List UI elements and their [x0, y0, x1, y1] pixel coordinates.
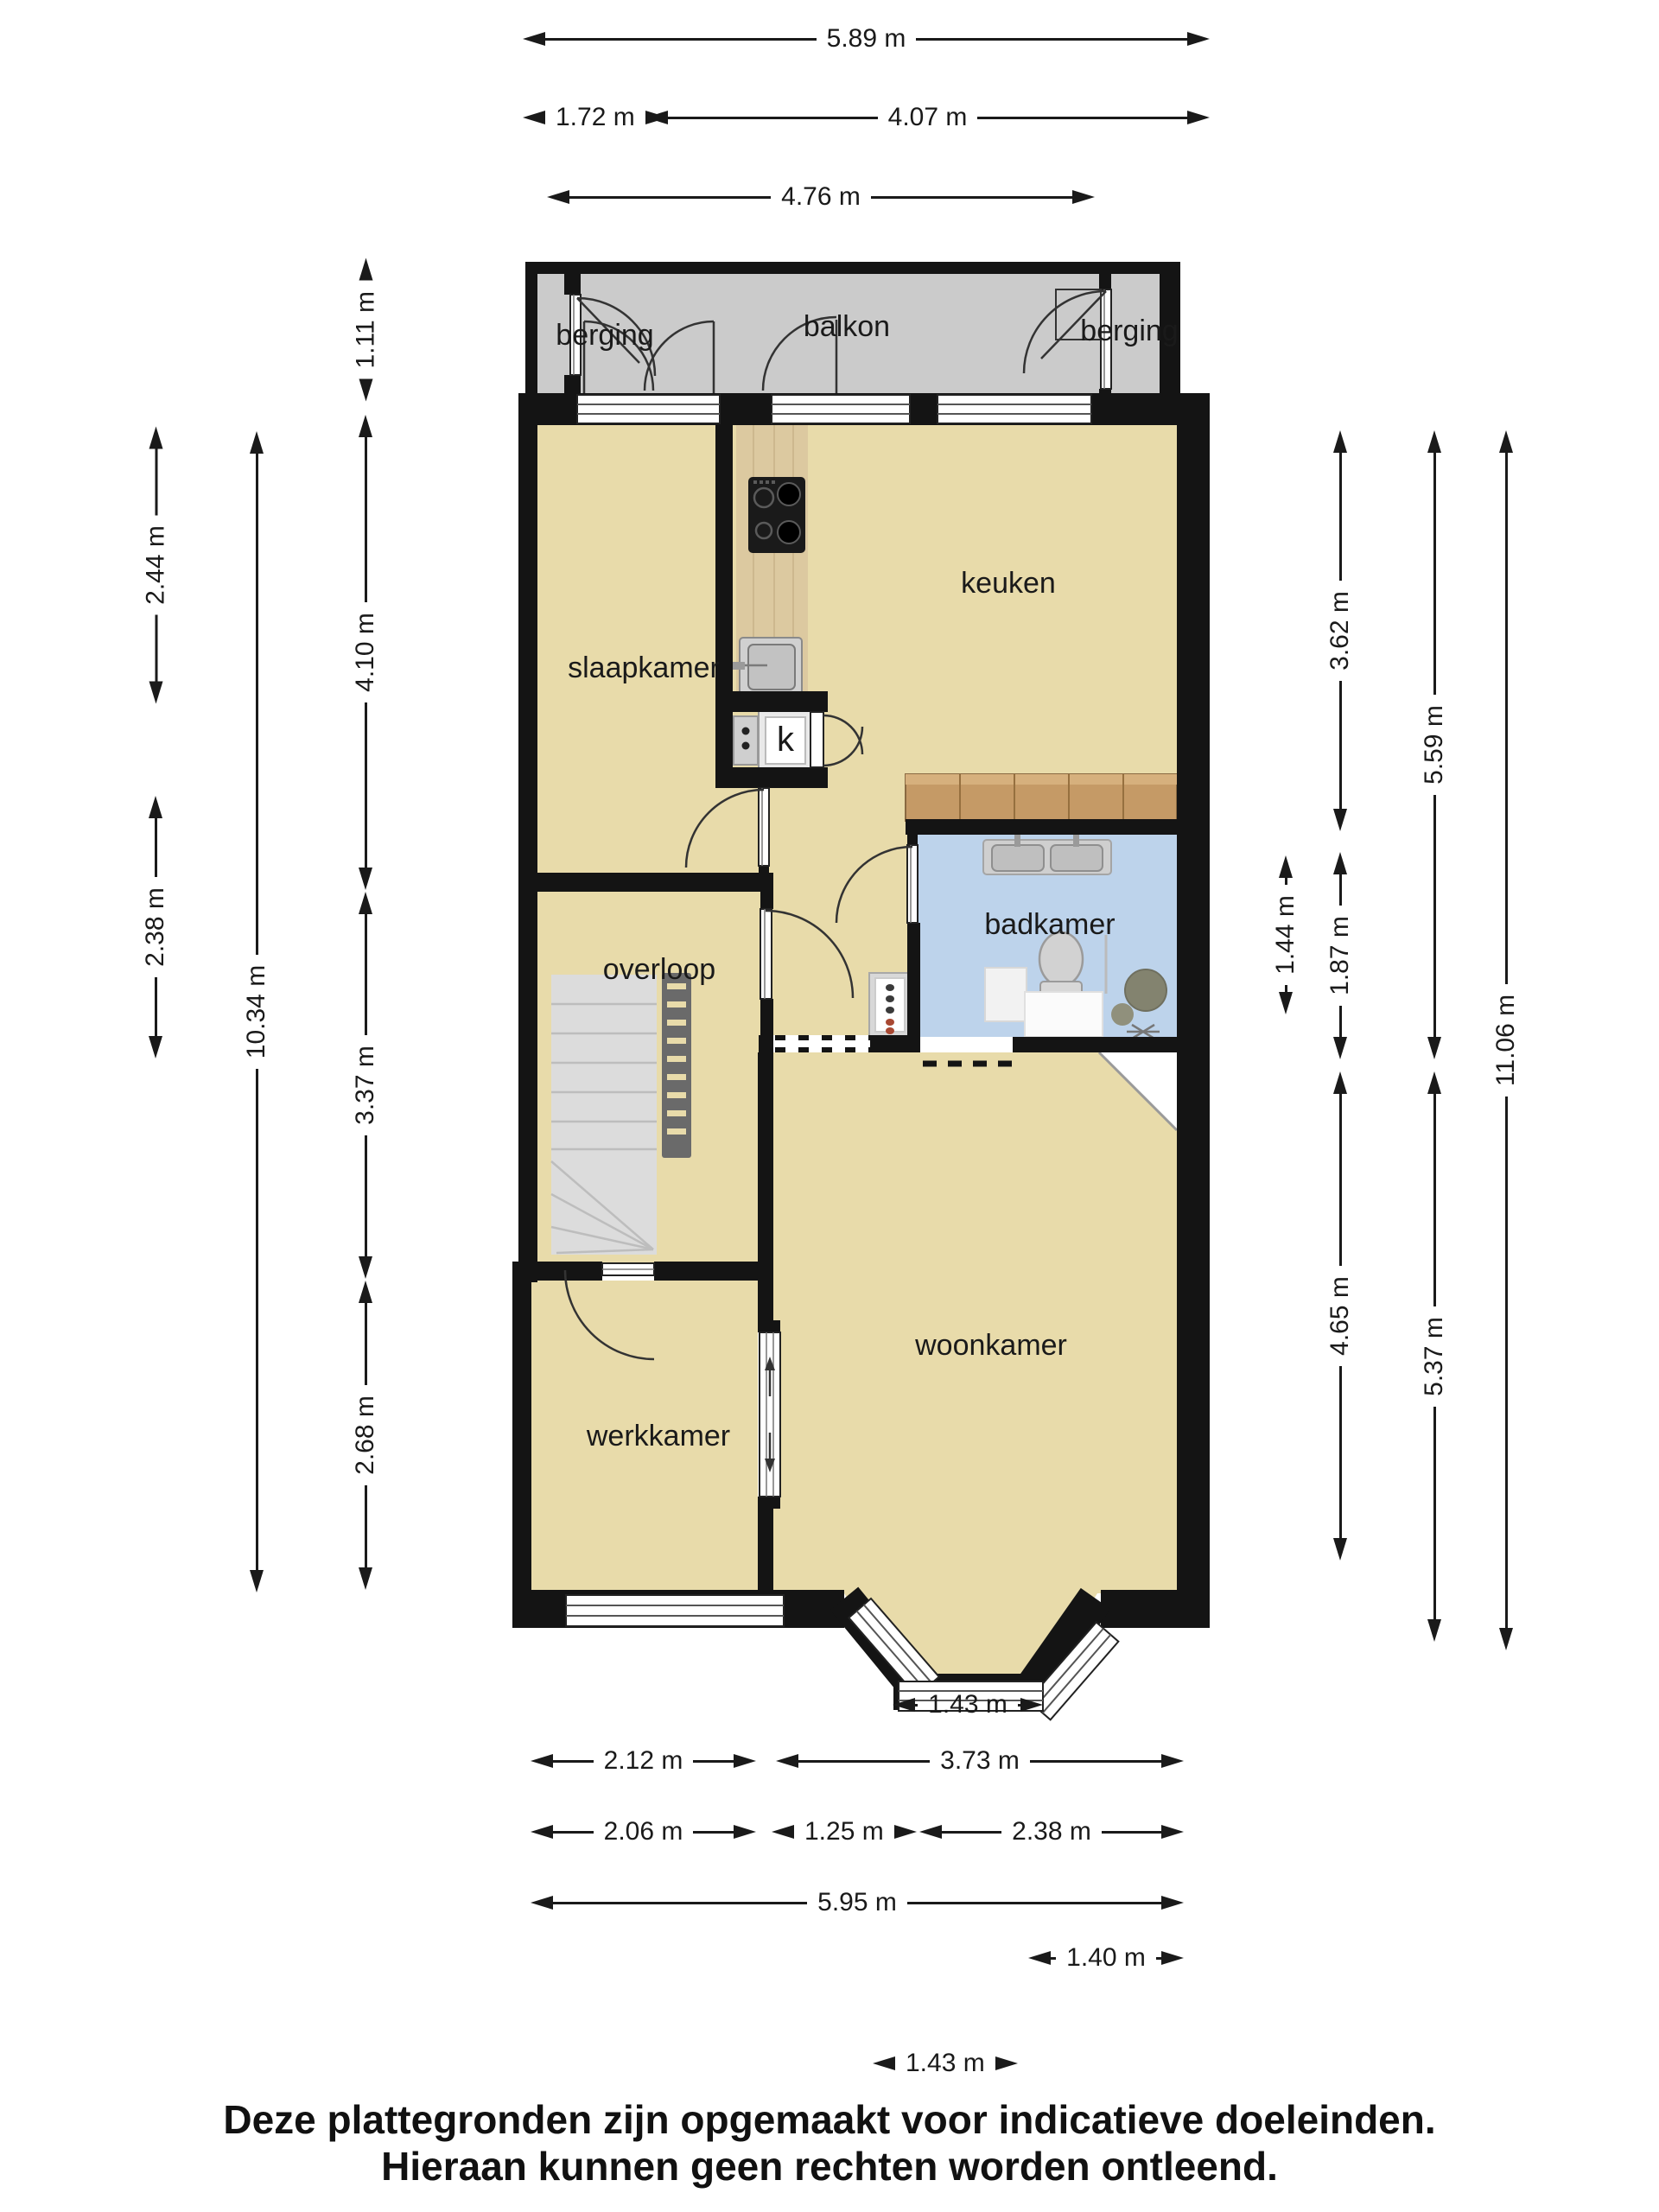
- meter-cupboard-icon: [869, 973, 911, 1037]
- room-label-badkamer: badkamer: [984, 910, 1115, 939]
- dim-bottom-143: 1.43 m: [873, 2048, 1007, 2079]
- kitchen-balcony-door: [772, 395, 910, 423]
- balcony-french-door: [577, 395, 720, 423]
- floorplan-page: berging balkon berging slaapkamer keuken…: [0, 0, 1659, 2212]
- room-label-woonkamer: woonkamer: [915, 1331, 1067, 1360]
- dim-top-balcony: 4.76 m: [547, 181, 1095, 213]
- bathroom-vanity-icon: [983, 833, 1111, 874]
- dim-left-balcony-depth: 1.11 m: [351, 275, 382, 402]
- dim-top-left: 1.72 m: [523, 102, 637, 133]
- dim-right-total: 11.06 m: [1491, 430, 1522, 1650]
- stair-railing: [662, 973, 691, 1158]
- dim-bottom-2b: 1.25 m: [772, 1816, 904, 1847]
- room-label-kast: k: [777, 722, 794, 757]
- disclaimer-line-2: Hieraan kunnen geen rechten worden ontle…: [0, 2145, 1659, 2189]
- dim-bottom-1a: 2.12 m: [531, 1745, 756, 1777]
- disclaimer-line-1: Deze plattegronden zijn opgemaakt voor i…: [0, 2098, 1659, 2142]
- staircase: [551, 975, 657, 1255]
- dim-left-landing: 3.37 m: [350, 892, 381, 1279]
- livingroom-floor: [773, 1052, 1177, 1681]
- dim-right-537: 5.37 m: [1419, 1071, 1450, 1642]
- dim-left-244: 2.44 m: [141, 427, 172, 704]
- boiler-closet: [734, 710, 812, 771]
- dim-bottom-2a: 2.06 m: [531, 1816, 756, 1847]
- dim-bay-width: 1.43 m: [893, 1689, 1043, 1720]
- dim-top-total: 5.89 m: [523, 23, 1210, 54]
- room-label-werkkamer: werkkamer: [587, 1421, 730, 1451]
- dim-right-kitchen: 3.62 m: [1325, 430, 1356, 831]
- dim-bottom-total: 5.95 m: [531, 1887, 1184, 1918]
- room-label-slaapkamer: slaapkamer: [568, 653, 720, 683]
- dim-left-238: 2.38 m: [140, 796, 171, 1058]
- dim-right-559: 5.59 m: [1419, 430, 1450, 1059]
- sliding-doors: [760, 1332, 780, 1497]
- dim-left-workroom: 2.68 m: [350, 1281, 381, 1590]
- dim-right-living: 4.65 m: [1325, 1071, 1356, 1560]
- kitchen-sink-icon: [733, 638, 802, 696]
- cooktop-icon: [748, 477, 805, 553]
- room-label-keuken: keuken: [961, 569, 1056, 598]
- dim-left-bedroom: 4.10 m: [350, 415, 381, 890]
- dim-right-144: 1.44 m: [1270, 855, 1301, 1014]
- dim-right-bathroom: 1.87 m: [1325, 852, 1356, 1059]
- workroom-window: [566, 1595, 784, 1626]
- dim-bottom-2c: 2.38 m: [919, 1816, 1184, 1847]
- dim-bottom-1b: 3.73 m: [776, 1745, 1184, 1777]
- dim-left-total: 10.34 m: [241, 431, 272, 1592]
- kitchen-window: [938, 395, 1091, 423]
- dim-top-right: 4.07 m: [645, 102, 1210, 133]
- room-label-balkon: balkon: [804, 312, 890, 341]
- toilet-icon: [1039, 932, 1083, 995]
- wall-opening-ticks: [773, 1035, 870, 1052]
- room-label-berging-right: berging: [1080, 316, 1178, 346]
- dim-bottom-140: 1.40 m: [1028, 1942, 1184, 1974]
- kitchen-cabinets: [906, 774, 1177, 821]
- room-label-berging-left: berging: [556, 321, 653, 350]
- room-label-overloop: overloop: [603, 955, 715, 984]
